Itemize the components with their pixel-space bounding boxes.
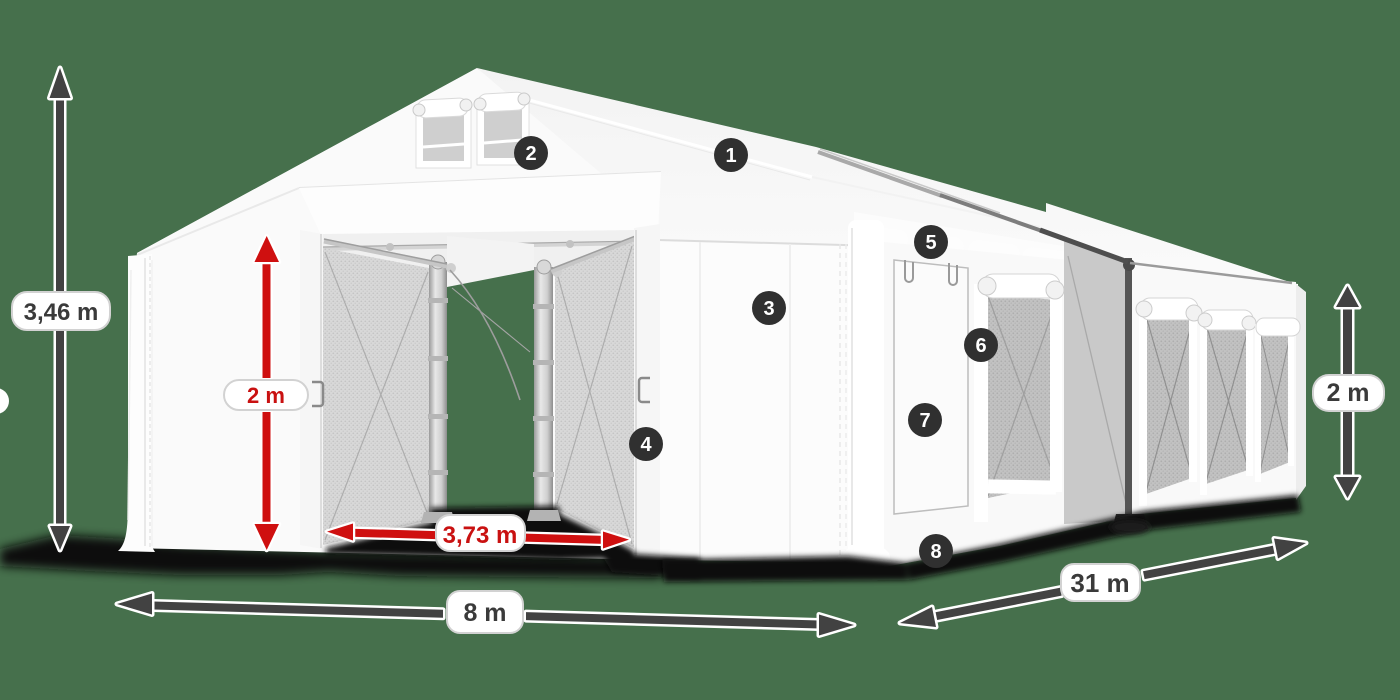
svg-text:2 m: 2 m	[1326, 379, 1369, 407]
svg-text:5: 5	[925, 232, 936, 254]
svg-text:8 m: 8 m	[463, 599, 506, 627]
svg-text:3: 3	[763, 298, 774, 320]
svg-text:8: 8	[930, 541, 941, 563]
svg-text:6: 6	[975, 335, 986, 357]
svg-text:7: 7	[919, 410, 930, 432]
svg-text:3,73 m: 3,73 m	[443, 522, 518, 549]
svg-text:4: 4	[640, 434, 652, 456]
svg-text:31 m: 31 m	[1070, 568, 1129, 598]
svg-text:3,46 m: 3,46 m	[24, 299, 99, 326]
svg-text:2 m: 2 m	[247, 383, 285, 408]
svg-text:2: 2	[525, 143, 536, 165]
svg-text:1: 1	[725, 145, 736, 167]
